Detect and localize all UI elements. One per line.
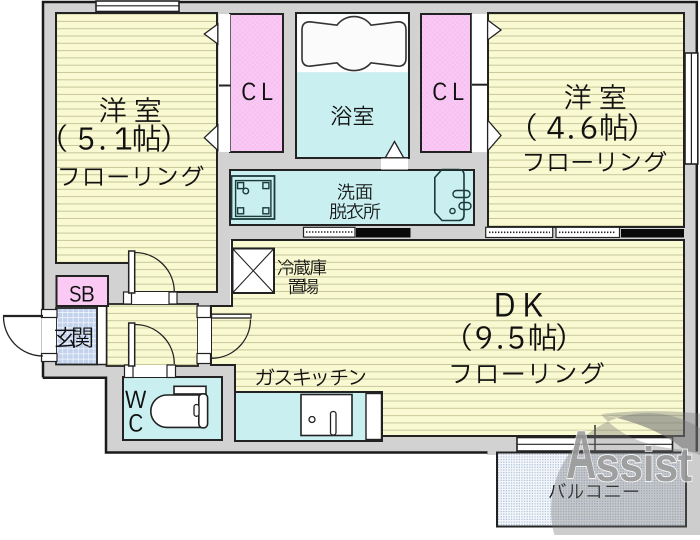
svg-text:A: A bbox=[566, 417, 596, 493]
svg-text:ssist: ssist bbox=[596, 438, 692, 492]
